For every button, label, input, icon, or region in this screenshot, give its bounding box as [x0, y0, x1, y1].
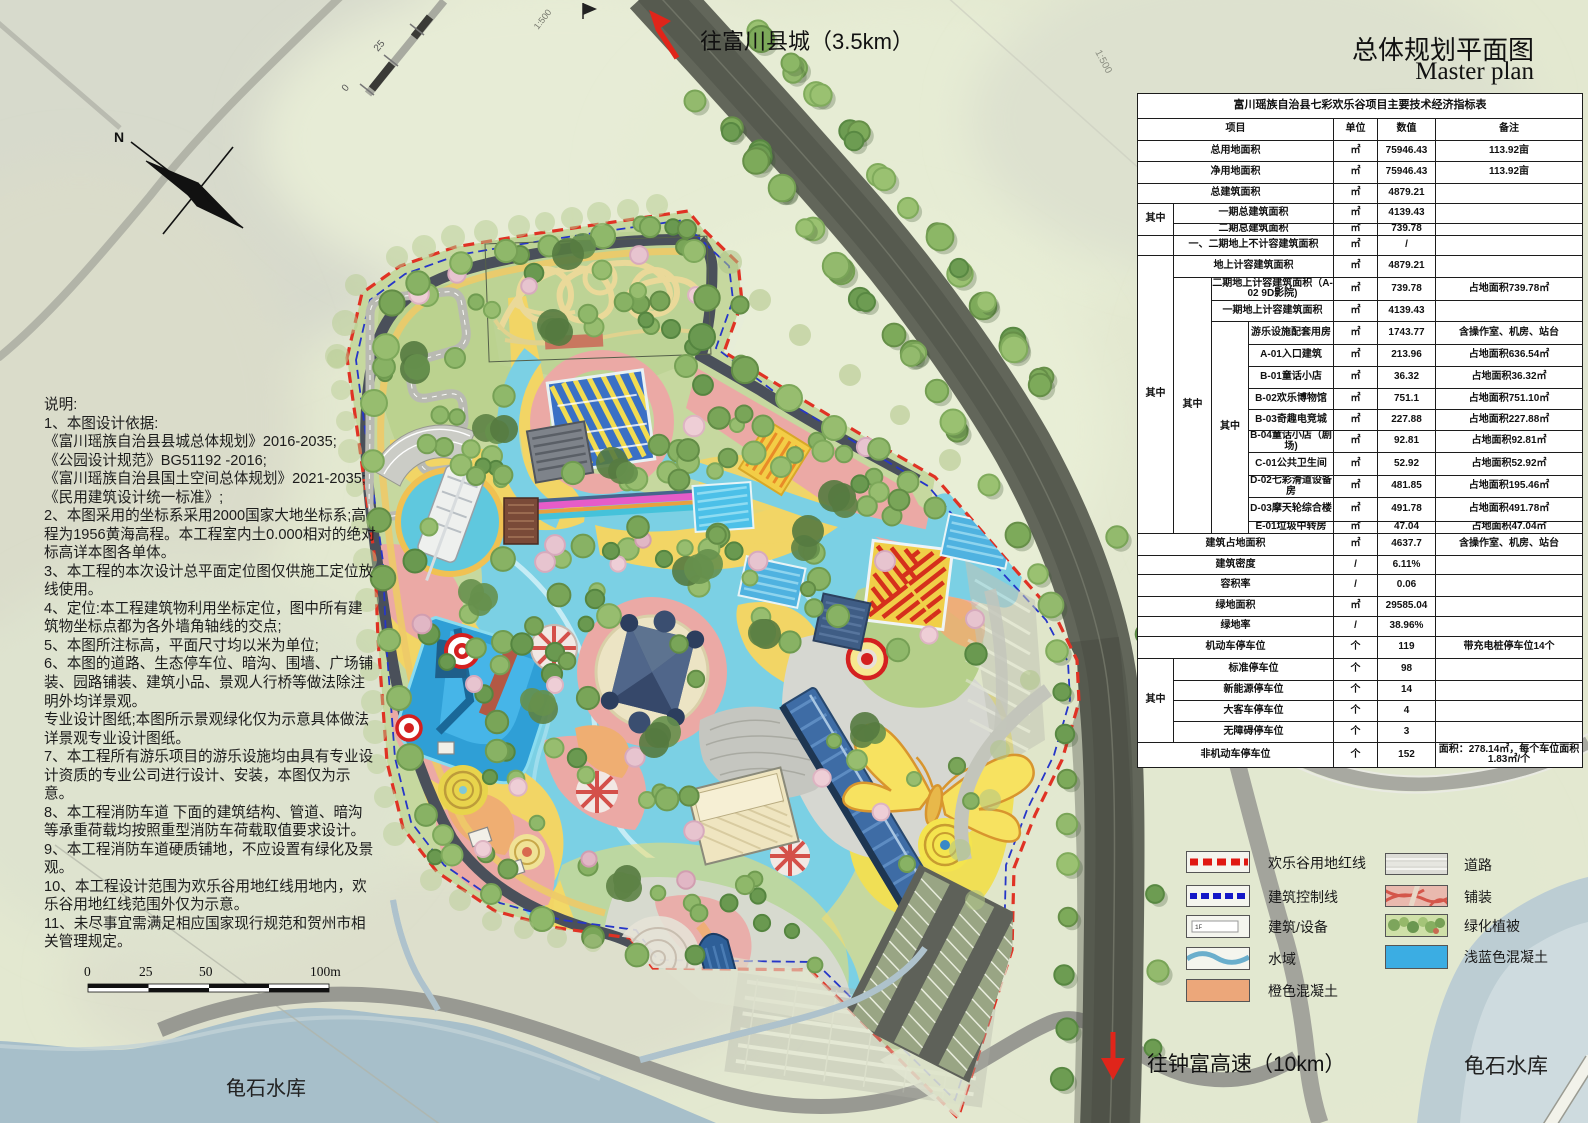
svg-text:100m: 100m	[310, 964, 341, 979]
svg-text:50: 50	[199, 964, 213, 979]
svg-text:1F: 1F	[1195, 924, 1203, 931]
svg-text:25: 25	[139, 964, 153, 979]
svg-text:0: 0	[84, 964, 91, 979]
svg-text:N: N	[114, 129, 124, 145]
